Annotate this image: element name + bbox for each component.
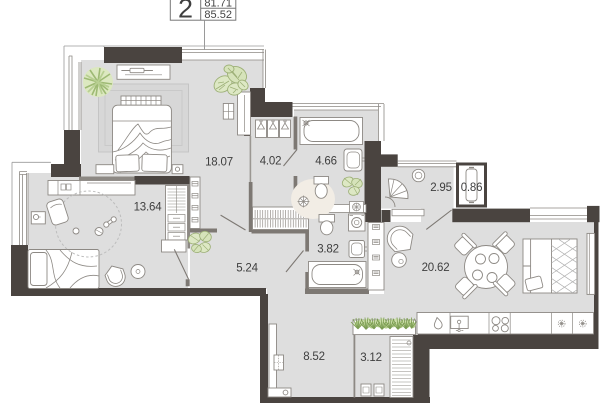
svg-text:3.82: 3.82 bbox=[317, 244, 339, 256]
svg-text:2: 2 bbox=[178, 0, 193, 24]
svg-text:13.64: 13.64 bbox=[134, 202, 163, 214]
svg-text:5.24: 5.24 bbox=[236, 263, 258, 275]
svg-text:4.66: 4.66 bbox=[315, 156, 337, 168]
svg-text:20.62: 20.62 bbox=[422, 262, 450, 274]
svg-text:2.95: 2.95 bbox=[430, 182, 452, 194]
svg-text:85.52: 85.52 bbox=[204, 9, 232, 21]
svg-text:8.52: 8.52 bbox=[303, 351, 325, 363]
svg-text:0.86: 0.86 bbox=[461, 182, 483, 194]
svg-text:4.02: 4.02 bbox=[260, 156, 282, 168]
svg-text:3.12: 3.12 bbox=[360, 352, 382, 364]
svg-text:18.07: 18.07 bbox=[205, 157, 233, 169]
